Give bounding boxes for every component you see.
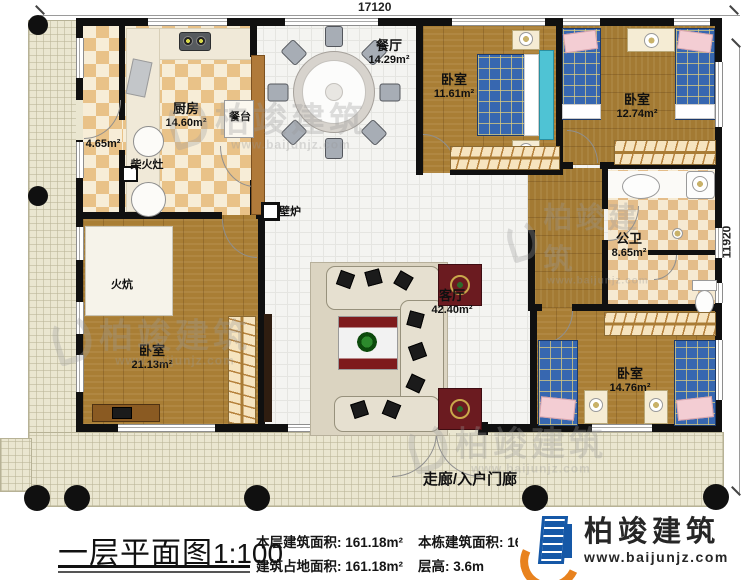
wall [602, 240, 608, 310]
potted-plant [357, 332, 377, 352]
dining-chair [325, 26, 343, 47]
window [715, 62, 723, 127]
washer-door [692, 176, 708, 192]
bed-blanket [676, 396, 714, 421]
window [452, 18, 545, 26]
brand-text: 柏竣建筑 www.baijunjz.com [584, 518, 729, 565]
dining-chair [380, 84, 401, 102]
room-label-bedroom-bottomright: 卧室 14.76m² [610, 366, 651, 395]
bedside-lamp [644, 33, 659, 48]
brand-logo: 柏竣建筑 www.baijunjz.com [518, 514, 746, 578]
right-dimension-line [739, 46, 740, 494]
dimension-tick [731, 38, 741, 48]
window [76, 355, 84, 392]
column [703, 484, 729, 510]
bedside-lamp [649, 398, 663, 412]
corridor-floor [528, 168, 604, 308]
bed-headboard [539, 50, 554, 140]
title-underline [58, 571, 250, 573]
dining-chair [325, 138, 343, 159]
room-label-bedroom-left: 卧室 21.13m² [132, 343, 173, 372]
wardrobe [228, 316, 256, 424]
tv-cabinet [264, 314, 272, 422]
column [64, 485, 90, 511]
wall [416, 168, 423, 175]
window [674, 18, 710, 26]
wall [250, 25, 257, 57]
column [244, 485, 270, 511]
stat-story-height: 层高: 3.6m [418, 555, 484, 575]
title-underline [58, 565, 250, 568]
bathroom-sink [622, 174, 660, 199]
wall [602, 169, 608, 209]
room-label-bath: 公卫 8.65m² [612, 231, 647, 260]
window [148, 18, 227, 26]
wood-stove-pot [133, 126, 164, 157]
laptop [112, 407, 132, 419]
dimension-tick [729, 5, 739, 15]
door-opening [76, 100, 83, 140]
bedside-lamp [519, 32, 533, 46]
bed-blanket [539, 396, 576, 421]
floor-plan-canvas: 17120 11920 [0, 0, 750, 580]
stove-burner [196, 36, 206, 46]
stove-burner [183, 36, 193, 46]
column [522, 485, 548, 511]
wood-stove-pot [131, 182, 166, 217]
dimension-tick [35, 5, 45, 15]
window [715, 228, 723, 258]
room-label-dining: 餐厅 14.29m² [369, 38, 410, 67]
label-fireplace: 壁炉 [279, 203, 301, 219]
window [715, 340, 723, 400]
wardrobe [614, 140, 716, 165]
top-dimension-label: 17120 [358, 0, 391, 14]
room-label-bedroom-top: 卧室 11.61m² [434, 72, 474, 101]
window [76, 38, 84, 78]
window [118, 424, 215, 432]
porch-step-left [0, 438, 32, 492]
wall [528, 230, 535, 310]
room-label-bedroom-topright: 卧室 12.74m² [617, 92, 658, 121]
brand-name: 柏竣建筑 [584, 518, 729, 547]
rug-emblem [450, 399, 470, 419]
logo-swoosh [512, 523, 588, 580]
porch-bottom [28, 432, 724, 507]
brand-logo-icon [518, 514, 580, 578]
label-dining-counter: 餐台 [229, 108, 251, 124]
top-dimension-line [40, 15, 740, 16]
stat-floor-area: 本层建筑面积: 161.18m² [256, 531, 403, 551]
bed-sheet [562, 104, 601, 119]
window [563, 18, 600, 26]
wall [530, 304, 537, 432]
wall [119, 150, 125, 215]
label-kang: 火炕 [111, 276, 133, 292]
stat-footprint: 建筑占地面积: 161.18m² [256, 555, 403, 575]
bed-sheet [675, 104, 715, 119]
window [76, 302, 84, 334]
window [592, 424, 652, 432]
label-wood-stove: 柴火灶 [131, 156, 164, 172]
column [28, 186, 48, 206]
column [28, 15, 48, 35]
window [285, 18, 378, 26]
window [76, 227, 84, 260]
wall [563, 162, 573, 169]
label-porch: 走廊/入户门廊 [423, 468, 517, 489]
window [76, 142, 84, 178]
dining-chair [268, 84, 289, 102]
room-label-living: 客厅 42.40m² [432, 288, 473, 317]
room-label-pantry: 4.65m² [86, 138, 121, 151]
column [24, 485, 50, 511]
dining-table-center [325, 83, 343, 101]
kang-bed-platform [85, 226, 173, 316]
fireplace-box [261, 202, 280, 221]
bed-sheet [524, 54, 539, 136]
porch-left [28, 20, 80, 442]
wall [416, 25, 423, 175]
wardrobe [450, 146, 560, 170]
bedside-lamp [589, 398, 603, 412]
wardrobe [604, 312, 716, 336]
shower-head [672, 228, 683, 239]
room-label-kitchen: 厨房 14.60m² [166, 101, 207, 130]
brand-website: www.baijunjz.com [584, 549, 729, 565]
